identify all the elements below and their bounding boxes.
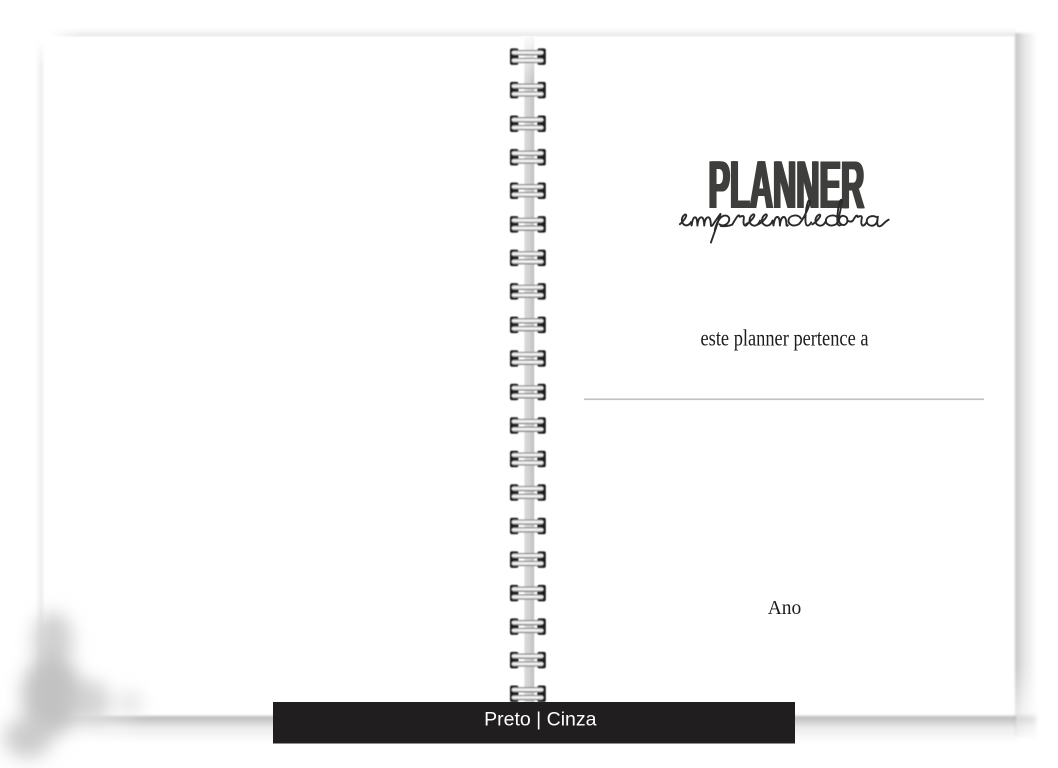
svg-text:este planner pertence a: este planner pertence a <box>701 326 869 352</box>
svg-text:Ano: Ano <box>768 598 802 619</box>
svg-text:Preto | Cinza: Preto | Cinza <box>484 709 597 731</box>
svg-text:PLANNER: PLANNER <box>710 148 866 223</box>
